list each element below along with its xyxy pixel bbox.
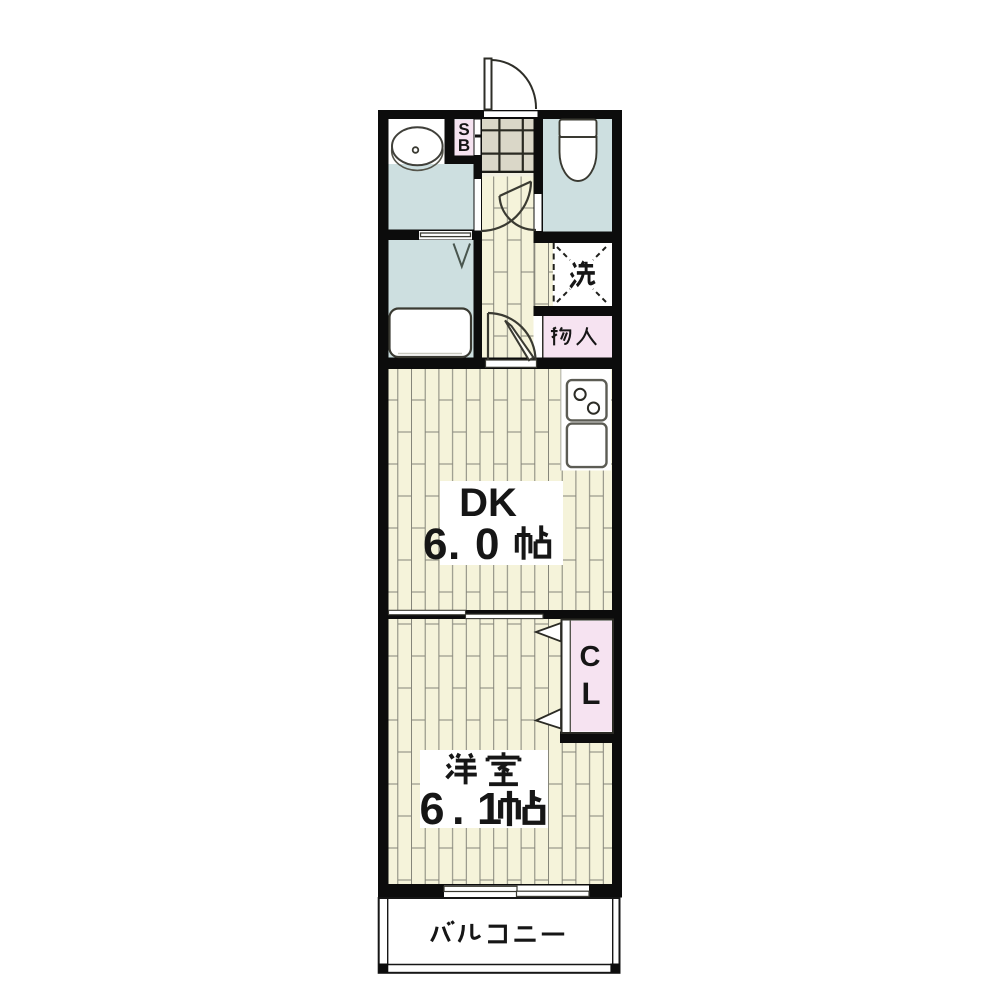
svg-text:DK: DK (459, 481, 517, 525)
svg-text:B: B (458, 136, 470, 155)
svg-text:C: C (580, 641, 601, 673)
svg-text:L: L (582, 676, 601, 711)
svg-text:6.1: 6.1 (420, 783, 503, 834)
